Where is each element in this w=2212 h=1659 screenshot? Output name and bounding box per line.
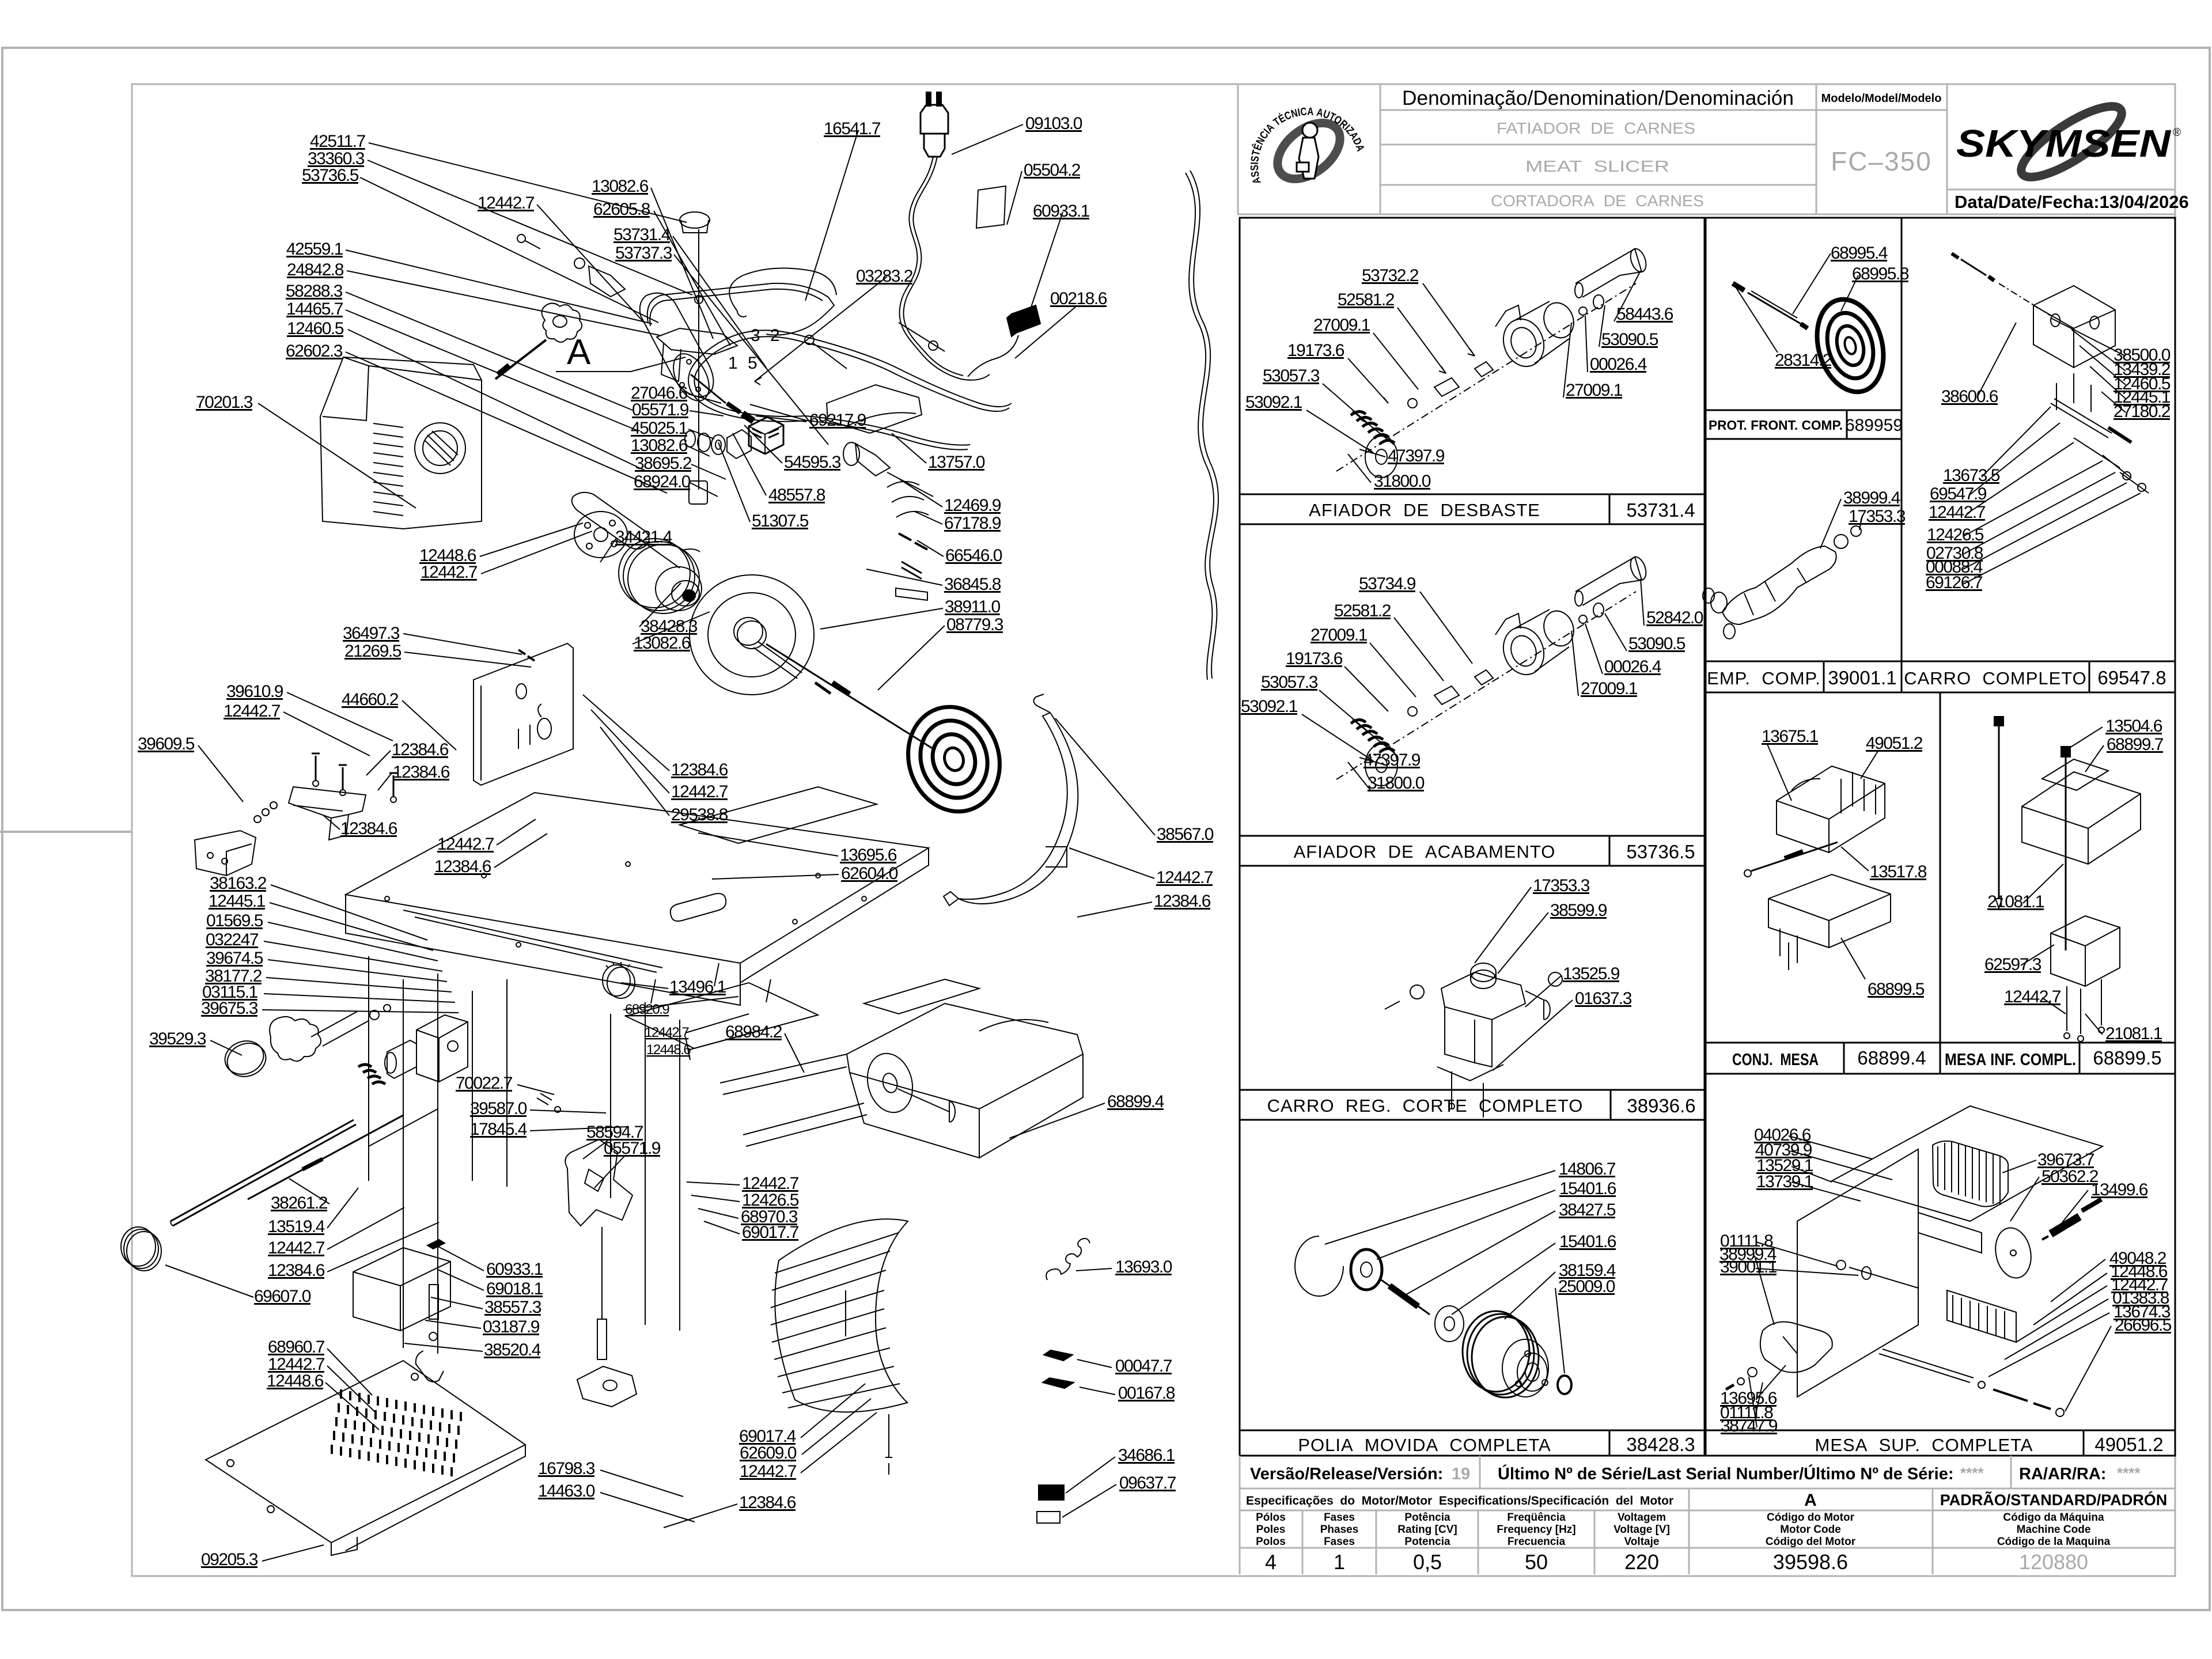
svg-text:12448.6: 12448.6 bbox=[267, 1372, 324, 1391]
svg-text:Denominação/Denomination/Denom: Denominação/Denomination/Denominación bbox=[1402, 87, 1794, 109]
svg-text:13739.1: 13739.1 bbox=[1756, 1172, 1813, 1191]
svg-text:00047.7: 00047.7 bbox=[1115, 1357, 1172, 1376]
svg-text:15401.6: 15401.6 bbox=[1559, 1179, 1616, 1198]
svg-text:Rating [CV]: Rating [CV] bbox=[1397, 1524, 1457, 1536]
svg-text:Código do Motor: Código do Motor bbox=[1767, 1512, 1855, 1524]
svg-text:25009.0: 25009.0 bbox=[1558, 1277, 1615, 1296]
svg-text:032247: 032247 bbox=[206, 930, 259, 949]
svg-text:13693.0: 13693.0 bbox=[1115, 1257, 1172, 1277]
svg-text:44660.2: 44660.2 bbox=[342, 690, 399, 709]
svg-text:34686.1: 34686.1 bbox=[1118, 1446, 1175, 1465]
svg-text:39001.1: 39001.1 bbox=[1720, 1257, 1777, 1277]
svg-text:36845.8: 36845.8 bbox=[944, 575, 1001, 594]
svg-text:4: 4 bbox=[1265, 1550, 1277, 1574]
svg-text:68924.0: 68924.0 bbox=[634, 472, 691, 491]
svg-text:AFIADOR DE DESBASTE: AFIADOR DE DESBASTE bbox=[1309, 500, 1540, 520]
svg-text:Último Nº de Série/Last Serial: Último Nº de Série/Last Serial Number/Úl… bbox=[1498, 1464, 1954, 1483]
svg-text:62604.0: 62604.0 bbox=[841, 864, 898, 883]
svg-text:69217.9: 69217.9 bbox=[809, 411, 866, 430]
svg-text:12426.5: 12426.5 bbox=[1927, 525, 1984, 544]
svg-text:27009.1: 27009.1 bbox=[1310, 626, 1368, 645]
svg-text:13695.6: 13695.6 bbox=[840, 846, 897, 865]
svg-text:12384.6: 12384.6 bbox=[739, 1493, 796, 1512]
svg-text:Voltage [V]: Voltage [V] bbox=[1613, 1524, 1670, 1536]
svg-text:36497.3: 36497.3 bbox=[343, 624, 400, 643]
svg-text:39587.0: 39587.0 bbox=[470, 1099, 527, 1118]
svg-text:Código da Máquina: Código da Máquina bbox=[2003, 1512, 2104, 1524]
svg-text:68899.5: 68899.5 bbox=[2093, 1047, 2161, 1069]
svg-text:13675.1: 13675.1 bbox=[1762, 727, 1819, 746]
svg-text:17353.3: 17353.3 bbox=[1533, 876, 1590, 895]
svg-text:62609.0: 62609.0 bbox=[740, 1444, 797, 1463]
svg-text:62597.3: 62597.3 bbox=[1984, 955, 2041, 974]
svg-text:CONJ. MESA: CONJ. MESA bbox=[1732, 1051, 1819, 1069]
svg-text:13082.6: 13082.6 bbox=[592, 177, 649, 196]
svg-text:68899.4: 68899.4 bbox=[1857, 1047, 1926, 1069]
svg-text:53737.3: 53737.3 bbox=[615, 244, 672, 263]
svg-text:00026.4: 00026.4 bbox=[1604, 657, 1661, 676]
svg-text:PADRÃO/STANDARD/PADRÓN: PADRÃO/STANDARD/PADRÓN bbox=[1940, 1491, 2168, 1509]
svg-text:12442.7: 12442.7 bbox=[437, 835, 494, 854]
svg-text:45025.1: 45025.1 bbox=[631, 419, 688, 438]
svg-text:38567.0: 38567.0 bbox=[1157, 825, 1214, 844]
svg-text:Fases: Fases bbox=[1324, 1512, 1355, 1524]
svg-text:50: 50 bbox=[1525, 1550, 1548, 1574]
svg-text:13757.0: 13757.0 bbox=[928, 453, 985, 472]
svg-text:Data/Date/Fecha:13/04/2026: Data/Date/Fecha:13/04/2026 bbox=[1955, 192, 2189, 212]
svg-text:08779.3: 08779.3 bbox=[946, 615, 1003, 634]
svg-text:38261.2: 38261.2 bbox=[271, 1194, 328, 1213]
svg-text:38911.0: 38911.0 bbox=[945, 597, 1001, 616]
svg-text:69547.9: 69547.9 bbox=[1930, 484, 1987, 503]
svg-text:Polos: Polos bbox=[1256, 1536, 1286, 1548]
svg-text:CORTADORA DE CARNES: CORTADORA DE CARNES bbox=[1491, 192, 1704, 210]
svg-text:MESA INF. COMPL.: MESA INF. COMPL. bbox=[1945, 1051, 2076, 1069]
svg-text:21081.1: 21081.1 bbox=[1987, 892, 2044, 911]
svg-text:Potência: Potência bbox=[1404, 1512, 1450, 1524]
svg-text:58288.3: 58288.3 bbox=[286, 282, 343, 301]
svg-text:47397.9: 47397.9 bbox=[1388, 446, 1445, 465]
svg-text:13499.6: 13499.6 bbox=[2091, 1180, 2148, 1199]
svg-text:FC–350: FC–350 bbox=[1831, 146, 1932, 176]
svg-text:60933.1: 60933.1 bbox=[486, 1260, 543, 1279]
svg-text:39675.3: 39675.3 bbox=[201, 999, 258, 1018]
svg-text:66546.0: 66546.0 bbox=[945, 546, 1002, 565]
svg-text:54595.3: 54595.3 bbox=[784, 453, 841, 472]
svg-text:CARRO COMPLETO: CARRO COMPLETO bbox=[1904, 668, 2087, 688]
svg-text:A: A bbox=[567, 332, 591, 372]
svg-text:19: 19 bbox=[1452, 1465, 1470, 1483]
svg-text:47397.9: 47397.9 bbox=[1363, 751, 1421, 770]
svg-text:CARRO REG. CORTE COMPLETO: CARRO REG. CORTE COMPLETO bbox=[1267, 1096, 1584, 1116]
svg-text:51307.5: 51307.5 bbox=[752, 512, 809, 531]
svg-text:62602.3: 62602.3 bbox=[286, 342, 343, 361]
svg-text:27009.1: 27009.1 bbox=[1581, 679, 1638, 698]
svg-text:70201.3: 70201.3 bbox=[196, 393, 253, 412]
svg-text:42559.1: 42559.1 bbox=[286, 240, 343, 259]
svg-text:Código de la Maquina: Código de la Maquina bbox=[1997, 1536, 2111, 1548]
svg-text:Motor Code: Motor Code bbox=[1780, 1524, 1841, 1536]
svg-text:09205.3: 09205.3 bbox=[201, 1550, 258, 1569]
svg-text:****: **** bbox=[2117, 1464, 2141, 1482]
svg-text:00218.6: 00218.6 bbox=[1050, 289, 1107, 308]
svg-text:13673.5: 13673.5 bbox=[1943, 466, 2000, 485]
svg-text:Voltaje: Voltaje bbox=[1624, 1536, 1660, 1548]
svg-text:69126.7: 69126.7 bbox=[1926, 573, 1983, 592]
svg-text:03187.9: 03187.9 bbox=[483, 1317, 540, 1336]
svg-text:17353.3: 17353.3 bbox=[1849, 507, 1906, 526]
svg-text:13519.4: 13519.4 bbox=[268, 1217, 325, 1236]
svg-text:5: 5 bbox=[748, 354, 757, 373]
svg-text:12442.7: 12442.7 bbox=[1929, 503, 1986, 522]
svg-text:Voltagem: Voltagem bbox=[1618, 1512, 1666, 1524]
svg-text:34421.4: 34421.4 bbox=[615, 528, 672, 547]
svg-text:53736.5: 53736.5 bbox=[1626, 841, 1695, 862]
svg-text:39598.6: 39598.6 bbox=[1773, 1550, 1848, 1574]
svg-text:19173.6: 19173.6 bbox=[1287, 341, 1344, 360]
svg-text:12448.6: 12448.6 bbox=[646, 1042, 691, 1058]
svg-text:12460.5: 12460.5 bbox=[287, 319, 344, 338]
svg-text:39610.9: 39610.9 bbox=[226, 682, 283, 701]
svg-text:53732.2: 53732.2 bbox=[1362, 266, 1419, 285]
svg-text:****: **** bbox=[1960, 1464, 1984, 1482]
svg-text:MESA SUP. COMPLETA: MESA SUP. COMPLETA bbox=[1815, 1435, 2033, 1455]
svg-text:12442.7: 12442.7 bbox=[645, 1025, 689, 1040]
svg-text:AFIADOR DE ACABAMENTO: AFIADOR DE ACABAMENTO bbox=[1294, 842, 1556, 862]
svg-text:12384.6: 12384.6 bbox=[393, 763, 450, 782]
svg-text:49051.2: 49051.2 bbox=[2094, 1434, 2163, 1455]
svg-text:68995.4: 68995.4 bbox=[1831, 244, 1888, 263]
svg-text:POLIA MOVIDA COMPLETA: POLIA MOVIDA COMPLETA bbox=[1298, 1435, 1551, 1455]
svg-text:68960.7: 68960.7 bbox=[268, 1338, 325, 1357]
svg-text:27180.2: 27180.2 bbox=[2113, 402, 2171, 421]
svg-text:PROT. FRONT. COMP.: PROT. FRONT. COMP. bbox=[1709, 418, 1843, 433]
svg-text:27009.1: 27009.1 bbox=[1566, 381, 1623, 400]
svg-text:00167.8: 00167.8 bbox=[1118, 1384, 1175, 1403]
svg-text:12384.6: 12384.6 bbox=[268, 1261, 325, 1280]
svg-text:14463.0: 14463.0 bbox=[538, 1482, 595, 1501]
svg-text:0,5: 0,5 bbox=[1413, 1550, 1442, 1574]
svg-text:68899.4: 68899.4 bbox=[1107, 1092, 1164, 1111]
svg-text:13517.8: 13517.8 bbox=[1870, 862, 1927, 881]
svg-text:29538.8: 29538.8 bbox=[671, 805, 728, 824]
svg-text:13082.6: 13082.6 bbox=[634, 634, 691, 653]
svg-text:A: A bbox=[1804, 1491, 1817, 1510]
svg-text:15401.6: 15401.6 bbox=[1559, 1232, 1616, 1251]
svg-text:220: 220 bbox=[1624, 1550, 1659, 1574]
svg-text:12442.7: 12442.7 bbox=[671, 782, 728, 801]
svg-text:1: 1 bbox=[728, 354, 738, 373]
svg-text:27009.1: 27009.1 bbox=[1313, 316, 1370, 335]
svg-text:39001.1: 39001.1 bbox=[1828, 667, 1896, 688]
svg-text:14465.7: 14465.7 bbox=[286, 300, 343, 319]
svg-text:01569.5: 01569.5 bbox=[206, 911, 263, 930]
svg-text:12384.6: 12384.6 bbox=[671, 760, 728, 779]
svg-text:12384.6: 12384.6 bbox=[392, 740, 449, 759]
svg-text:39674.5: 39674.5 bbox=[206, 949, 263, 968]
svg-text:42511.7: 42511.7 bbox=[310, 132, 366, 151]
svg-text:38427.5: 38427.5 bbox=[1559, 1200, 1616, 1219]
svg-text:RA/AR/RA:: RA/AR/RA: bbox=[2019, 1465, 2106, 1483]
svg-text:52842.0: 52842.0 bbox=[1646, 608, 1703, 627]
svg-text:58443.6: 58443.6 bbox=[1616, 305, 1673, 324]
svg-text:®: ® bbox=[2173, 127, 2181, 139]
svg-text:2: 2 bbox=[770, 326, 780, 345]
svg-text:01637.3: 01637.3 bbox=[1575, 989, 1632, 1008]
svg-text:39609.5: 39609.5 bbox=[138, 734, 195, 753]
svg-text:38428.3: 38428.3 bbox=[1626, 1434, 1695, 1455]
svg-text:16541.7: 16541.7 bbox=[824, 119, 881, 138]
svg-text:05571.9: 05571.9 bbox=[632, 400, 689, 419]
svg-text:68899.5: 68899.5 bbox=[1868, 980, 1925, 999]
svg-text:38747.9: 38747.9 bbox=[1721, 1416, 1778, 1435]
svg-text:05504.2: 05504.2 bbox=[1024, 161, 1081, 180]
svg-text:16798.3: 16798.3 bbox=[538, 1459, 595, 1478]
svg-text:09103.0: 09103.0 bbox=[1025, 114, 1082, 133]
svg-text:17845.4: 17845.4 bbox=[470, 1120, 527, 1139]
svg-text:38999.4: 38999.4 bbox=[1843, 488, 1900, 507]
svg-text:53057.3: 53057.3 bbox=[1261, 673, 1318, 692]
svg-text:68920.9: 68920.9 bbox=[625, 1002, 669, 1017]
svg-text:13504.6: 13504.6 bbox=[2105, 717, 2162, 736]
svg-text:53057.3: 53057.3 bbox=[1263, 366, 1320, 385]
svg-text:00026.4: 00026.4 bbox=[1590, 355, 1647, 374]
svg-text:62605.8: 62605.8 bbox=[593, 200, 650, 219]
svg-text:12442.7: 12442.7 bbox=[421, 563, 478, 582]
svg-text:53736.5: 53736.5 bbox=[302, 166, 359, 185]
svg-text:67178.9: 67178.9 bbox=[944, 514, 1001, 533]
svg-text:50362.2: 50362.2 bbox=[2041, 1167, 2099, 1186]
svg-text:53731.4: 53731.4 bbox=[613, 225, 671, 244]
svg-text:69017.7: 69017.7 bbox=[742, 1223, 799, 1242]
svg-text:12384.6: 12384.6 bbox=[340, 819, 397, 838]
svg-text:12442.7: 12442.7 bbox=[268, 1238, 325, 1257]
svg-text:31800.0: 31800.0 bbox=[1374, 472, 1431, 491]
svg-text:12442.7: 12442.7 bbox=[740, 1462, 797, 1481]
svg-text:Machine Code: Machine Code bbox=[2017, 1524, 2091, 1536]
svg-text:Modelo/Model/Modelo: Modelo/Model/Modelo bbox=[1821, 92, 1942, 105]
svg-text:13525.9: 13525.9 bbox=[1563, 964, 1620, 983]
svg-text:Fases: Fases bbox=[1324, 1536, 1355, 1548]
svg-text:21269.5: 21269.5 bbox=[344, 642, 402, 661]
svg-text:120880: 120880 bbox=[2019, 1550, 2088, 1574]
svg-text:12442.7: 12442.7 bbox=[224, 702, 281, 721]
svg-text:38599.9: 38599.9 bbox=[1550, 901, 1607, 920]
svg-text:53090.5: 53090.5 bbox=[1628, 634, 1685, 653]
svg-text:26696.5: 26696.5 bbox=[2115, 1316, 2172, 1335]
svg-text:SKYMSEN: SKYMSEN bbox=[1956, 122, 2172, 165]
svg-text:68899.7: 68899.7 bbox=[2107, 735, 2164, 754]
svg-text:Phases: Phases bbox=[1320, 1524, 1359, 1536]
svg-text:38520.4: 38520.4 bbox=[484, 1340, 541, 1359]
svg-text:12442.7: 12442.7 bbox=[478, 194, 535, 213]
svg-text:69607.0: 69607.0 bbox=[254, 1287, 311, 1306]
svg-text:24842.8: 24842.8 bbox=[287, 260, 344, 279]
svg-text:12469.9: 12469.9 bbox=[944, 496, 1001, 515]
svg-text:69547.8: 69547.8 bbox=[2097, 667, 2166, 688]
svg-text:Versão/Release/Versión:: Versão/Release/Versión: bbox=[1250, 1465, 1443, 1483]
svg-text:13082.6: 13082.6 bbox=[631, 436, 688, 455]
svg-text:FATIADOR DE CARNES: FATIADOR DE CARNES bbox=[1497, 119, 1695, 137]
svg-text:09637.7: 09637.7 bbox=[1119, 1474, 1176, 1493]
svg-text:Código del Motor: Código del Motor bbox=[1766, 1536, 1856, 1548]
svg-text:38936.6: 38936.6 bbox=[1627, 1095, 1695, 1116]
svg-text:12384.6: 12384.6 bbox=[1154, 892, 1211, 911]
svg-text:05571.9: 05571.9 bbox=[604, 1139, 661, 1158]
svg-text:49051.2: 49051.2 bbox=[1866, 734, 1923, 753]
svg-text:53092.1: 53092.1 bbox=[1245, 393, 1302, 412]
svg-text:12442.7: 12442.7 bbox=[1156, 868, 1213, 887]
svg-text:Poles: Poles bbox=[1256, 1524, 1286, 1536]
svg-text:03283.2: 03283.2 bbox=[856, 267, 913, 286]
svg-text:53734.9: 53734.9 bbox=[1359, 574, 1416, 593]
svg-text:31800.0: 31800.0 bbox=[1368, 774, 1425, 793]
svg-text:53092.1: 53092.1 bbox=[1241, 697, 1298, 716]
svg-text:53090.5: 53090.5 bbox=[1601, 330, 1658, 349]
svg-text:68995.8: 68995.8 bbox=[1852, 264, 1909, 283]
svg-text:12442.7: 12442.7 bbox=[2004, 987, 2061, 1006]
svg-text:19173.6: 19173.6 bbox=[1286, 649, 1343, 668]
svg-text:3: 3 bbox=[751, 326, 760, 345]
svg-text:48557.8: 48557.8 bbox=[768, 486, 825, 505]
svg-text:39529.3: 39529.3 bbox=[149, 1029, 206, 1048]
svg-text:Especificações do Motor/Moto: Especificações do Motor/Motor Especifica… bbox=[1246, 1494, 1673, 1508]
svg-text:68984.2: 68984.2 bbox=[725, 1022, 782, 1041]
svg-text:13496.1: 13496.1 bbox=[669, 978, 726, 997]
svg-text:EMP. COMP.: EMP. COMP. bbox=[1707, 668, 1821, 688]
svg-text:12384.6: 12384.6 bbox=[434, 857, 491, 876]
svg-text:Potencia: Potencia bbox=[1404, 1536, 1450, 1548]
svg-text:1: 1 bbox=[1334, 1550, 1345, 1574]
svg-text:69018.1: 69018.1 bbox=[486, 1279, 543, 1298]
svg-text:38695.2: 38695.2 bbox=[635, 454, 692, 473]
svg-text:Frecuencia: Frecuencia bbox=[1508, 1536, 1566, 1548]
svg-text:Frequency [Hz]: Frequency [Hz] bbox=[1497, 1524, 1575, 1536]
svg-text:MEAT SLICER: MEAT SLICER bbox=[1525, 157, 1669, 175]
svg-text:52581.2: 52581.2 bbox=[1338, 290, 1395, 309]
svg-text:53731.4: 53731.4 bbox=[1626, 499, 1695, 521]
svg-text:Pólos: Pólos bbox=[1256, 1512, 1286, 1524]
svg-text:Freqüência: Freqüência bbox=[1507, 1512, 1566, 1524]
svg-text:689959: 689959 bbox=[1845, 416, 1903, 435]
svg-text:38163.2: 38163.2 bbox=[210, 874, 267, 893]
svg-text:60933.1: 60933.1 bbox=[1033, 202, 1090, 221]
svg-text:28314.2: 28314.2 bbox=[1775, 351, 1832, 370]
svg-text:38557.3: 38557.3 bbox=[484, 1298, 541, 1317]
svg-text:21081.1: 21081.1 bbox=[2105, 1024, 2162, 1043]
svg-text:14806.7: 14806.7 bbox=[1559, 1160, 1616, 1179]
svg-text:38600.6: 38600.6 bbox=[1941, 387, 1998, 406]
svg-text:12445.1: 12445.1 bbox=[209, 892, 266, 911]
svg-text:70022.7: 70022.7 bbox=[456, 1074, 513, 1093]
svg-text:52581.2: 52581.2 bbox=[1334, 601, 1391, 620]
